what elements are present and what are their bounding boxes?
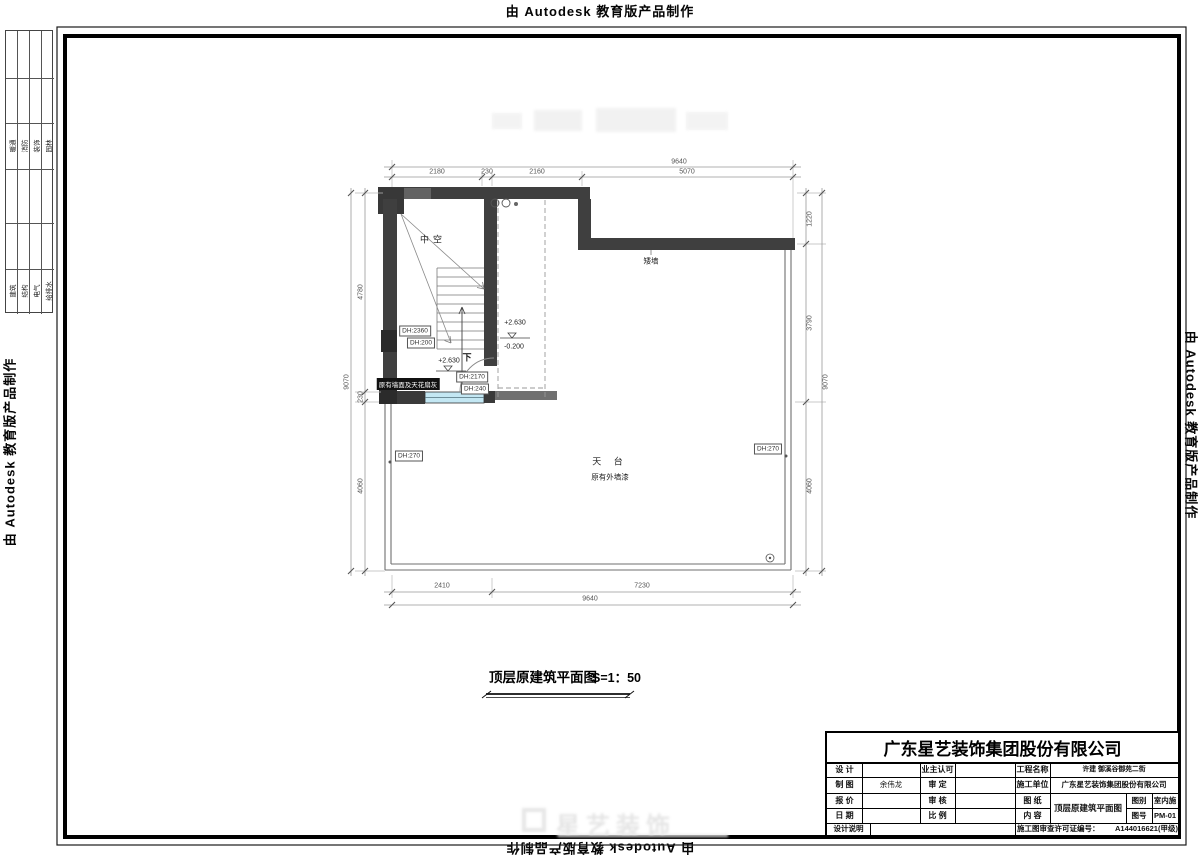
tb-label-approve: 审 定 [920, 777, 955, 792]
room-label-void: 中空 [420, 233, 446, 246]
drain-symbol-dot [769, 557, 771, 559]
tb-value-sheet-name: 顶层原建筑平面图 [1050, 793, 1126, 823]
dh-leader-dot [785, 455, 788, 458]
tb-value-category: 室内施 [1152, 793, 1178, 808]
tb-label-category: 图别 [1126, 793, 1152, 808]
tb-value-license: A144016621(甲级) [1115, 823, 1178, 835]
tb-label-project: 工程名称 [1015, 762, 1050, 777]
plan-scale: S=1：50 [592, 667, 641, 686]
dim-left-seg: 4780 [358, 284, 365, 300]
tb-label-design: 设 计 [827, 762, 862, 777]
dh-leader-dot [389, 461, 392, 464]
level-label-up-right: +2.630 [504, 320, 526, 327]
tb-label-quote: 报 价 [827, 793, 862, 808]
door-height-tag: DH:240 [461, 384, 489, 395]
dim-left-overall: 9070 [344, 374, 351, 390]
tb-label-date: 日 期 [827, 808, 862, 823]
tb-label-content: 内 容 [1015, 808, 1050, 823]
tb-divider [870, 823, 871, 835]
tb-label-number: 图号 [1126, 808, 1152, 823]
level-label-down-right: -0.200 [504, 344, 524, 351]
plan-title-underline [482, 691, 634, 698]
tb-label-license: 施工图审查许可证编号： [1017, 823, 1117, 835]
tb-label-note: 设计说明 [827, 823, 870, 835]
sheet-border [57, 27, 1186, 845]
stair-down-label: 下 [462, 351, 471, 364]
dim-left-seg: 230 [358, 391, 365, 403]
room-label-terrace: 天 台 [592, 455, 628, 468]
tb-label-owner: 业主认可 [920, 762, 955, 777]
dim-bottom-seg: 2410 [434, 583, 450, 590]
dim-bottom-seg: 7230 [634, 583, 650, 590]
wall-finish-note: 原有墙面及天花扇灰 [377, 378, 440, 390]
company-name: 广东星艺装饰集团股份有限公司 [827, 735, 1178, 760]
watermark-subline [558, 834, 728, 837]
drawing-sheet: 由 Autodesk 教育版产品制作 由 Autodesk 教育版产品制作 由 … [0, 0, 1200, 859]
low-wall-label: 矮墙 [644, 256, 659, 267]
opening-dashed-lines [498, 200, 545, 397]
dim-left-seg: 4060 [358, 478, 365, 494]
parapet-height-tag: DH:270 [754, 444, 782, 455]
door-height-tag: DH:2360 [399, 326, 431, 337]
tb-value-draft: 余伟龙 [862, 777, 920, 792]
dim-right-seg: 4060 [807, 478, 814, 494]
dim-top-overall: 9640 [671, 159, 687, 166]
tb-label-sheet: 图 纸 [1015, 793, 1050, 808]
tb-divider [955, 762, 956, 823]
walls [378, 187, 795, 404]
watermark-bottom: 星艺装饰 [522, 806, 752, 842]
tb-label-builder: 施工单位 [1015, 777, 1050, 792]
tb-value-builder: 广东星艺装饰集团股份有限公司 [1050, 777, 1178, 792]
dim-right-seg: 3790 [807, 315, 814, 331]
plan-title: 顶层原建筑平面图 [489, 666, 597, 686]
watermark-logo [522, 808, 546, 832]
dim-top-seg: 5070 [679, 169, 695, 176]
tb-label-draft: 制 图 [827, 777, 862, 792]
parapet-height-tag: DH:270 [395, 451, 423, 462]
dim-right-overall: 9070 [823, 374, 830, 390]
terrace-parapet [385, 250, 791, 570]
door-height-tag: DH:2170 [456, 372, 488, 383]
tb-divider [862, 762, 863, 823]
dim-top-seg: 2160 [529, 169, 545, 176]
dim-top-seg: 230 [481, 169, 493, 176]
tb-label-check: 审 核 [920, 793, 955, 808]
door-height-tag: DH:200 [407, 338, 435, 349]
tb-label-scale: 比 例 [920, 808, 955, 823]
title-block: 广东星艺装饰集团股份有限公司 设 计 业主认可 工程名称 许建 御溪谷御苑二街 … [825, 731, 1180, 837]
dim-right-seg: 1220 [807, 211, 814, 227]
level-label-up-left: +2.630 [438, 358, 460, 365]
tb-value-number: PM-01 [1152, 808, 1178, 823]
tb-value-project: 许建 御溪谷御苑二街 [1050, 762, 1178, 777]
terrace-finish-note: 原有外墙漆 [591, 472, 629, 483]
dim-bottom-overall: 9640 [582, 596, 598, 603]
dim-top-seg: 2180 [429, 169, 445, 176]
